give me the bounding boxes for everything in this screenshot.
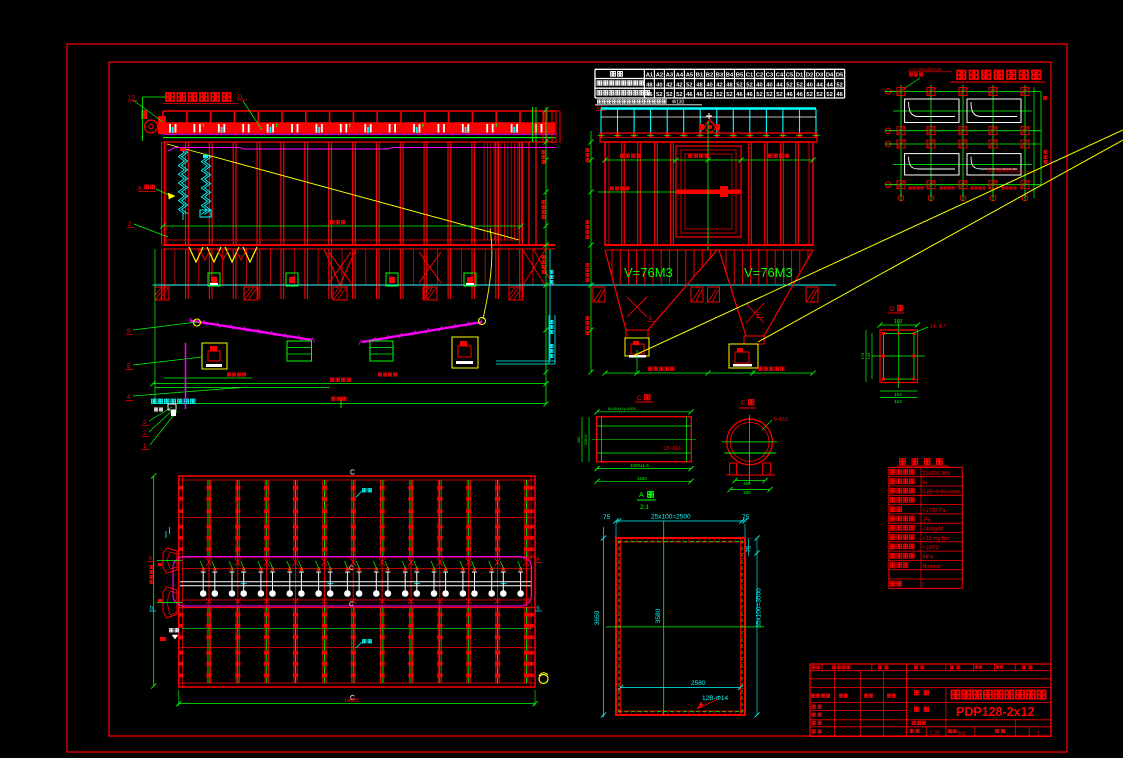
svg-text:<400g/M: <400g/M [923,527,944,533]
svg-text:46: 46 [746,92,753,98]
svg-text:11: 11 [237,95,244,101]
svg-text:46: 46 [836,92,843,98]
svg-text:V=76M3: V=76M3 [624,265,673,280]
svg-text:(kg): (kg) [958,731,966,736]
svg-text:D: D [890,306,895,313]
svg-text:75: 75 [747,545,753,552]
svg-text:1000±1.5: 1000±1.5 [630,463,649,468]
svg-text:46: 46 [796,92,803,98]
svg-text:75: 75 [603,514,611,521]
svg-text:44: 44 [816,83,823,89]
svg-text:52: 52 [716,92,722,98]
svg-text:46: 46 [686,92,693,98]
svg-text:<120 C: <120 C [923,545,940,551]
svg-text:52: 52 [756,92,762,98]
svg-text:52: 52 [676,92,682,98]
svg-text:124: 124 [894,399,902,404]
svg-text:E: E [757,312,761,318]
svg-text:D2: D2 [806,73,813,79]
svg-text:D4: D4 [826,73,834,79]
svg-text:<10 mg/Nm: <10 mg/Nm [923,536,951,542]
svg-text:3580: 3580 [655,608,662,623]
svg-text:400: 400 [576,436,581,443]
svg-text:C: C [637,395,642,402]
svg-text:A1: A1 [646,73,654,79]
svg-text:25x100=2500: 25x100=2500 [651,514,691,521]
svg-text:52: 52 [706,92,712,98]
svg-text:C: C [350,470,355,477]
svg-text:1: 1 [1037,731,1040,737]
svg-text:A: A [138,186,142,192]
svg-text:A2: A2 [656,73,663,79]
svg-text:52: 52 [686,83,692,89]
svg-text:C2=400x400x20: C2=400x400x20 [909,67,942,72]
svg-text:C1: C1 [746,73,754,79]
svg-text:52: 52 [666,92,672,98]
svg-text:175: 175 [860,352,865,359]
svg-text:150: 150 [743,481,751,486]
svg-text:A: A [639,492,644,499]
svg-text:C5: C5 [786,73,794,79]
svg-text:48: 48 [646,83,653,89]
svg-text:A4: A4 [676,73,684,79]
svg-text:b: b [537,606,540,612]
svg-text:144: 144 [866,352,871,359]
svg-text:335±1: 335±1 [583,434,588,446]
svg-text:52: 52 [776,92,782,98]
svg-text:42: 42 [666,83,672,89]
svg-text:52: 52 [816,92,822,98]
svg-text:0.85~0.95m/min: 0.85~0.95m/min [923,489,961,495]
svg-text:48: 48 [696,83,703,89]
svg-text:35x100=3500: 35x100=3500 [755,588,762,628]
svg-text:52: 52 [656,92,662,98]
svg-text:B3: B3 [716,73,724,79]
svg-text:C: C [349,566,354,572]
svg-text:Nm/min: Nm/min [923,564,941,570]
svg-text:E: E [741,400,746,407]
svg-text:52: 52 [746,83,752,89]
svg-text:8x150(±1)=1200: 8x150(±1)=1200 [608,407,636,411]
svg-text:46: 46 [786,92,793,98]
svg-text:S=200x200x-10: S=200x200x-10 [988,167,1020,172]
svg-text:160: 160 [894,319,903,325]
svg-text:B1: B1 [696,73,704,79]
svg-text:52: 52 [726,92,732,98]
svg-text:8-Φ10: 8-Φ10 [774,417,788,423]
svg-text:75: 75 [742,514,750,521]
svg-text:52: 52 [826,92,832,98]
svg-text:210000 M/h: 210000 M/h [923,471,951,477]
svg-text:MPa: MPa [923,555,934,561]
svg-text:2580: 2580 [691,680,706,687]
svg-text:104: 104 [894,392,902,397]
svg-text:C: C [349,602,354,608]
svg-text:A: A [149,556,153,562]
svg-text:B2: B2 [706,73,713,79]
svg-text:A5: A5 [686,73,694,79]
svg-text:1100: 1100 [637,476,647,481]
svg-text:40: 40 [766,83,772,89]
svg-text:D1: D1 [796,73,804,79]
svg-text:D3: D3 [816,73,824,79]
svg-text:12B-Φ14: 12B-Φ14 [702,695,729,702]
svg-text:44: 44 [826,83,833,89]
svg-text:C2: C2 [756,73,763,79]
svg-text:52: 52 [796,83,802,89]
svg-text:46: 46 [696,92,703,98]
svg-text:,Pa: ,Pa [923,517,931,523]
svg-text:E: E [649,316,653,322]
svg-text:B4: B4 [726,73,734,79]
svg-text:C3: C3 [766,73,774,79]
svg-text:180: 180 [743,490,751,495]
svg-text:3650: 3650 [594,610,601,625]
svg-text:42: 42 [676,83,682,89]
svg-text:m: m [923,480,928,486]
svg-text:40: 40 [656,83,662,89]
svg-text:1:20: 1:20 [930,731,941,737]
svg-text:40: 40 [706,83,712,89]
svg-text:28-Φ14: 28-Φ14 [664,446,681,452]
svg-text:D5: D5 [836,73,844,79]
svg-text:A3: A3 [666,73,674,79]
svg-text:46: 46 [736,92,743,98]
svg-text:B5: B5 [736,73,744,79]
svg-text:2:1: 2:1 [640,504,649,511]
svg-text:52: 52 [766,92,772,98]
svg-text:40: 40 [806,83,812,89]
svg-text:52: 52 [836,83,842,89]
svg-text:C4: C4 [776,73,784,79]
svg-text:44: 44 [776,83,783,89]
svg-text:42: 42 [716,83,722,89]
svg-text:52: 52 [786,83,792,89]
svg-text:14- Φ7: 14- Φ7 [930,324,946,330]
svg-text:PDP128-2x12: PDP128-2x12 [956,705,1035,719]
svg-text:<1700 Pa: <1700 Pa [923,508,946,514]
svg-text:b: b [150,606,153,612]
svg-text:48: 48 [726,83,733,89]
svg-text:40: 40 [756,83,762,89]
svg-text:V=76M3: V=76M3 [744,265,793,280]
svg-text:52: 52 [806,92,812,98]
svg-text:52: 52 [736,83,742,89]
svg-text:A: A [536,557,540,563]
svg-text:14000: 14000 [344,698,359,704]
